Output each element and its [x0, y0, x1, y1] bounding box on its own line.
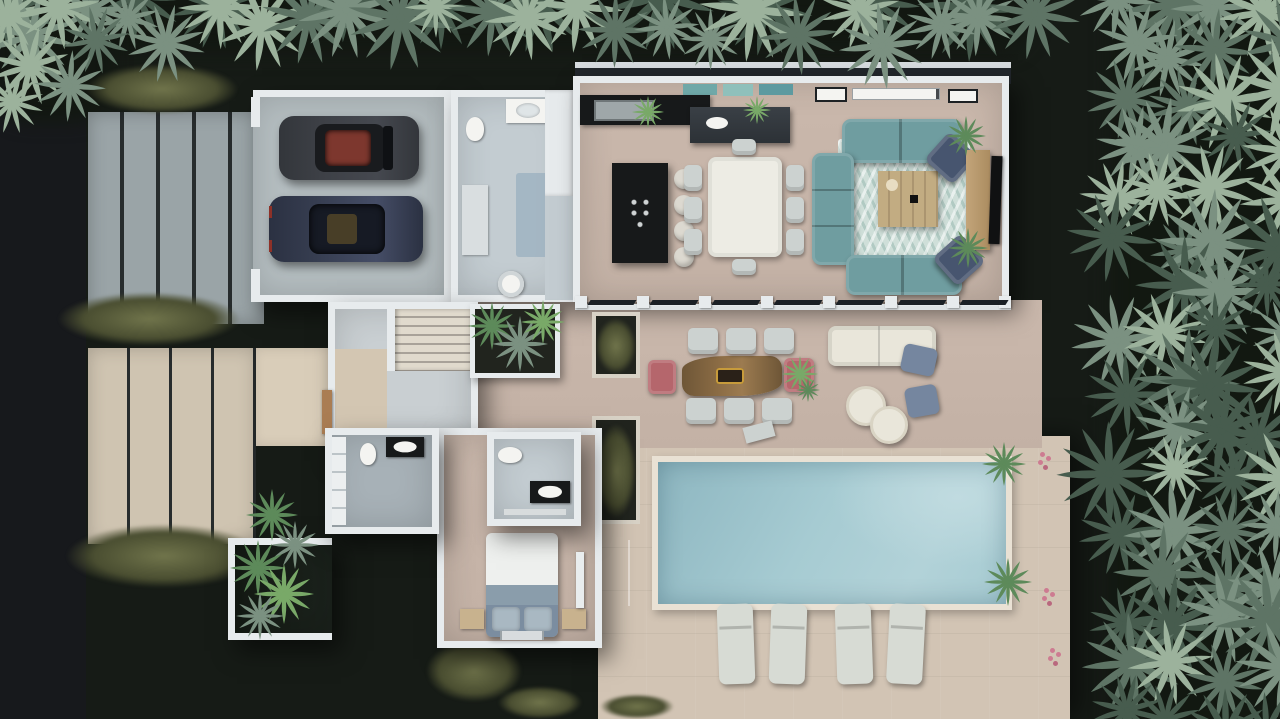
flower-shrub	[1040, 452, 1058, 474]
flower-dots	[1044, 588, 1049, 593]
tv-console	[966, 150, 990, 250]
nightstand	[562, 609, 586, 629]
door-glass	[959, 300, 1008, 305]
sideboard-tray	[706, 117, 728, 129]
door-post	[823, 296, 835, 308]
dining-chair	[732, 259, 756, 275]
floor-plan-render	[0, 0, 1280, 719]
terrace-centerpiece	[716, 368, 744, 384]
swimming-pool	[652, 456, 1012, 610]
dining-chair	[732, 139, 756, 155]
flower-shrub	[1044, 588, 1062, 610]
staircase	[395, 309, 471, 371]
bathroom-vanity	[386, 437, 424, 457]
terrace-chair	[726, 328, 756, 354]
courtyard-planter	[470, 304, 560, 378]
door-glass	[587, 300, 636, 305]
door-post	[761, 296, 773, 308]
island-hob	[628, 195, 652, 231]
tall-cabinets	[545, 90, 575, 196]
hedge-shadow-right	[1112, 0, 1280, 719]
bathroom-vanity	[530, 481, 570, 503]
sun-lounger	[717, 603, 756, 684]
flower-dots	[1050, 648, 1055, 653]
stair-wall	[387, 309, 395, 371]
hedge-shadow-corner	[0, 0, 112, 122]
wall-art	[683, 84, 717, 95]
sideboard	[690, 107, 790, 143]
table-vase	[886, 179, 898, 191]
car-coupe-windshield	[383, 126, 393, 170]
door-post	[947, 296, 959, 308]
wall-art	[723, 84, 753, 96]
terrace-chair	[762, 398, 792, 424]
olive-bush	[86, 64, 238, 114]
appliance-panel	[815, 87, 847, 102]
table-remote	[910, 195, 918, 203]
nightstand	[460, 609, 484, 629]
coffee-table	[878, 171, 938, 227]
garage	[253, 90, 451, 302]
toilet	[498, 447, 522, 463]
appliance-panel	[852, 88, 940, 100]
bath-shelf	[504, 509, 566, 515]
garage-wall-stub	[251, 269, 260, 302]
planter-shrub	[596, 424, 636, 518]
dining-chair	[684, 229, 702, 255]
terrace-chair	[686, 398, 716, 424]
coral-end-chair	[784, 358, 814, 392]
car-coupe	[279, 116, 419, 180]
pouf	[904, 383, 941, 418]
sun-lounger	[835, 603, 874, 684]
round-coffee-table	[870, 406, 908, 444]
cooktop-sink-panel	[594, 100, 654, 121]
dining-chair	[786, 165, 804, 191]
tv-screen	[988, 156, 1002, 244]
coral-end-chair	[648, 360, 676, 394]
car-sedan-taillight	[269, 206, 272, 218]
terrace-chair	[688, 328, 718, 354]
olive-bush	[600, 694, 674, 719]
flower-shrub	[1050, 648, 1068, 670]
door-post	[575, 296, 587, 308]
planter-shrub	[596, 318, 636, 374]
bed-pillow	[524, 607, 552, 631]
dining-chair	[684, 197, 702, 223]
terrace-chair	[764, 328, 794, 354]
hedge-shadow-top	[0, 0, 1030, 52]
garage-wall-stub	[251, 97, 260, 127]
door-glass	[773, 300, 822, 305]
dining-chair	[684, 165, 702, 191]
sun-lounger	[769, 603, 808, 684]
car-sedan-taillight	[269, 240, 272, 252]
dining-table	[708, 157, 782, 257]
car-sedan-seats	[327, 214, 357, 244]
toilet	[466, 117, 484, 141]
olive-bush	[58, 292, 240, 346]
olive-bush	[498, 686, 582, 719]
door-glass	[835, 300, 884, 305]
door-glass	[711, 300, 760, 305]
door-glass	[897, 300, 946, 305]
dresser	[500, 631, 544, 640]
utility-sink	[516, 103, 540, 118]
door-post	[699, 296, 711, 308]
toilet	[360, 443, 376, 465]
washer	[498, 271, 524, 297]
flower-dots	[1040, 452, 1045, 457]
car-sedan	[269, 196, 423, 262]
deck-joint	[628, 540, 630, 606]
sliding-doors	[575, 296, 1011, 310]
wardrobe	[332, 437, 346, 525]
dining-chair	[786, 197, 804, 223]
ensuite-bathroom	[487, 432, 581, 526]
dining-chair	[786, 229, 804, 255]
car-coupe-interior	[325, 130, 371, 166]
appliance-panel	[948, 89, 978, 103]
door-post	[637, 296, 649, 308]
door-post	[885, 296, 897, 308]
olive-planter	[592, 312, 640, 378]
door-glass	[649, 300, 698, 305]
entry-walkway	[253, 348, 331, 446]
sun-lounger	[886, 603, 926, 685]
bedroom-door-sill	[576, 552, 584, 608]
great-room	[573, 76, 1009, 302]
terrace-chair	[724, 398, 754, 424]
hallway-floor	[545, 196, 575, 300]
patio-slabs	[88, 348, 256, 544]
closet-bathroom	[325, 428, 439, 534]
sofa	[812, 153, 854, 265]
courtyard-niche	[228, 538, 332, 640]
wall-art	[759, 84, 793, 95]
bench	[462, 185, 488, 255]
bed-pillow	[492, 607, 520, 631]
